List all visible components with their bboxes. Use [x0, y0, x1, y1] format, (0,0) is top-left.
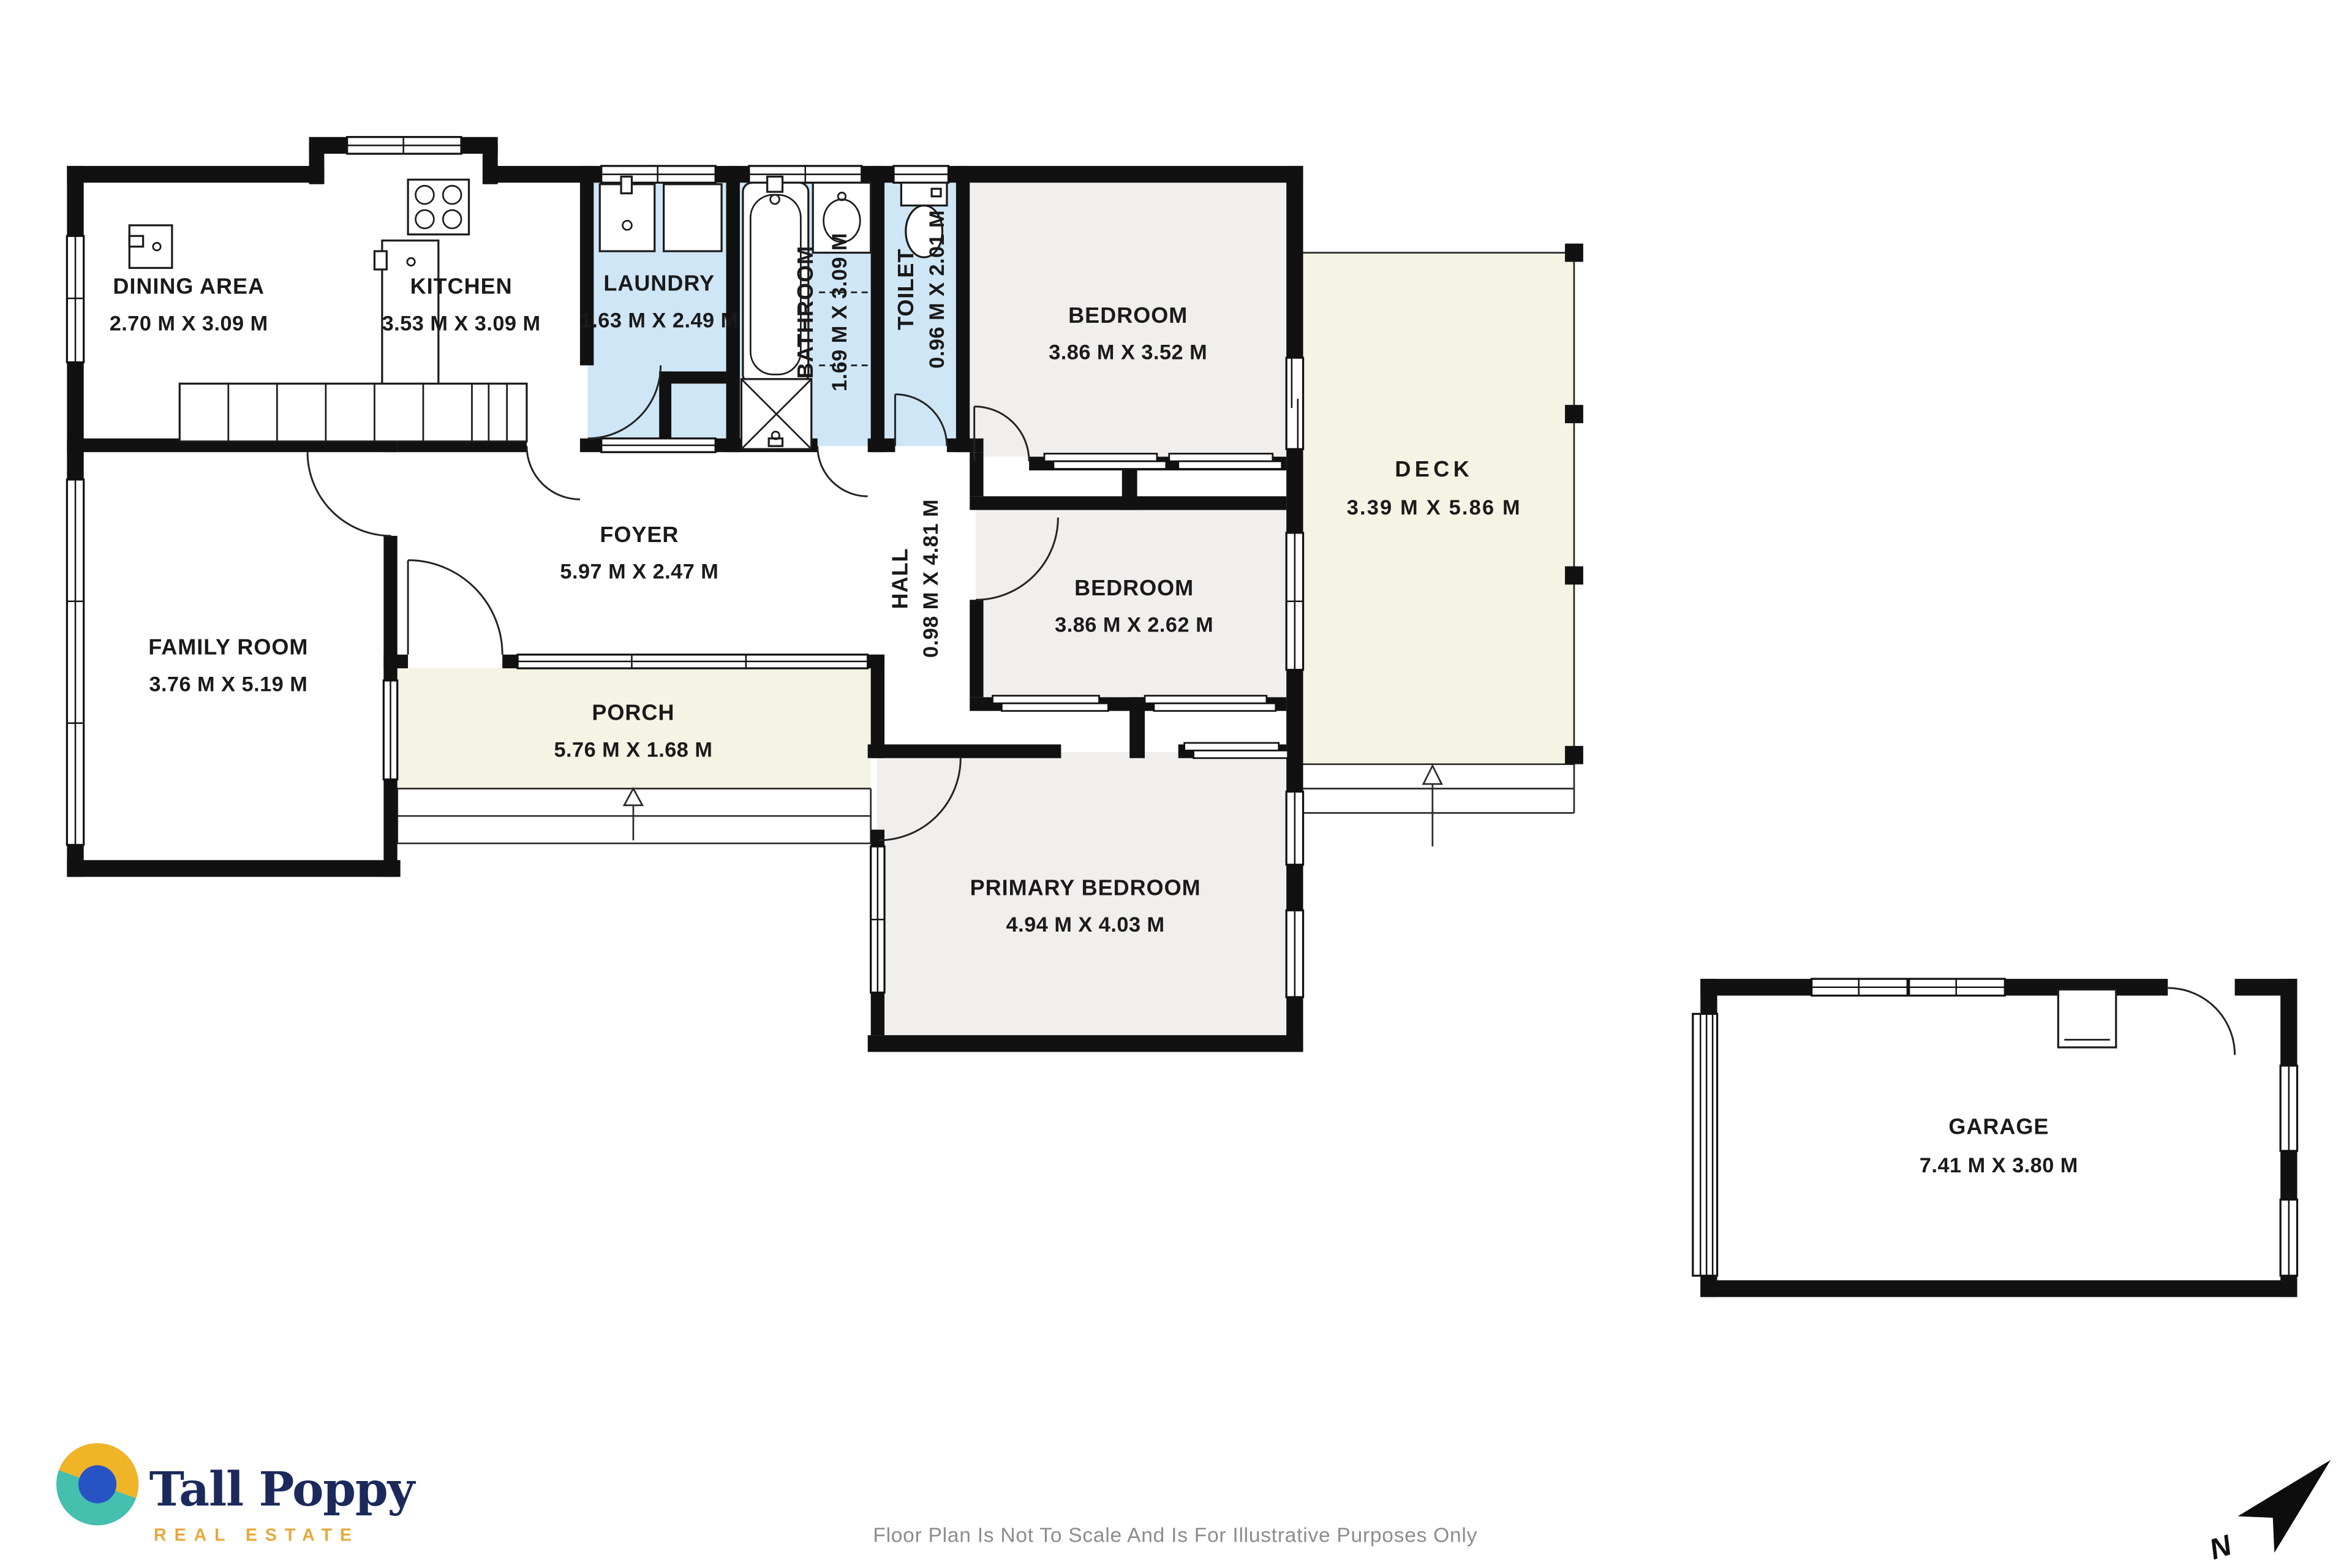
- brand-name: Tall Poppy: [149, 1462, 417, 1517]
- deck-post: [1565, 746, 1583, 764]
- stove: [408, 179, 469, 234]
- window-family-left: [67, 480, 83, 845]
- porch-structure: [398, 788, 871, 843]
- deck-post: [1565, 405, 1583, 423]
- label-bedroom2-dims: 3.86 M X 2.62 M: [1055, 613, 1213, 636]
- label-porch-dims: 5.76 M X 1.68 M: [554, 738, 712, 761]
- label-laundry-dims: 1.63 M X 2.49 M: [580, 309, 739, 332]
- deck-post: [1565, 244, 1583, 262]
- window-primary-right-1: [1286, 791, 1303, 864]
- north-arrow-n: N: [2206, 1529, 2236, 1566]
- slider-bedroom1-deck: [1286, 358, 1303, 449]
- label-dining-name: DINING AREA: [113, 274, 265, 299]
- window-garage-right-2: [2280, 1200, 2297, 1276]
- logo-center-dot: [78, 1465, 116, 1503]
- kitchen-cabinet-row: [179, 383, 527, 441]
- bedroom2-floor: [976, 502, 1286, 705]
- label-foyer-dims: 5.97 M X 2.47 M: [560, 560, 718, 583]
- window-laundry-top: [601, 166, 715, 183]
- window-family-porch: [383, 680, 397, 780]
- shower: [741, 379, 811, 449]
- label-hall-name: HALL: [887, 548, 912, 609]
- deck-post: [1565, 567, 1583, 585]
- label-foyer-name: FOYER: [600, 522, 679, 547]
- label-deck-name: DECK: [1395, 456, 1473, 481]
- label-garage-dims: 7.41 M X 3.80 M: [1920, 1154, 2078, 1177]
- window-primary-left: [871, 846, 884, 993]
- brand-logo: Tall Poppy REAL ESTATE: [56, 1443, 417, 1545]
- label-bathroom-name: BATHROOM: [793, 246, 818, 379]
- window-primary-right-2: [1286, 910, 1303, 997]
- window-garage-top-2: [1909, 979, 2005, 995]
- label-toilet-name: TOILET: [893, 249, 918, 330]
- dining-side-cabinet: [129, 225, 172, 268]
- label-porch-name: PORCH: [592, 700, 674, 725]
- label-bedroom1-dims: 3.86 M X 3.52 M: [1049, 341, 1207, 364]
- garage-fixtures: [2058, 990, 2116, 1047]
- window-garage-top-1: [1812, 979, 1908, 995]
- laundry-bench: [664, 184, 722, 251]
- label-hall-dims: 0.98 M X 4.81 M: [919, 499, 943, 658]
- window-porch-front: [518, 655, 868, 668]
- label-kitchen-dims: 3.53 M X 3.09 M: [382, 312, 541, 335]
- label-garage-name: GARAGE: [1948, 1114, 2049, 1139]
- label-dining-dims: 2.70 M X 3.09 M: [110, 312, 268, 335]
- window-garage-right-1: [2280, 1066, 2297, 1151]
- floorplan-drawing: DINING AREA 2.70 M X 3.09 M KITCHEN 3.53…: [0, 0, 2352, 1568]
- window-bedroom2-right: [1286, 533, 1303, 670]
- label-bedroom1-name: BEDROOM: [1068, 303, 1188, 328]
- label-deck-dims: 3.39 M X 5.86 M: [1347, 496, 1521, 519]
- porch-steps-arrow-head: [624, 788, 643, 805]
- window-laundry-bottom: [601, 439, 715, 452]
- north-arrow: N: [2206, 1460, 2331, 1567]
- island-handle: [374, 251, 386, 269]
- label-family-name: FAMILY ROOM: [148, 635, 308, 660]
- foyer-floor: [391, 446, 884, 660]
- label-bathroom-dims: 1.69 M X 3.09 M: [828, 233, 851, 391]
- label-family-dims: 3.76 M X 5.19 M: [149, 673, 307, 696]
- footer-disclaimer: Floor Plan Is Not To Scale And Is For Il…: [873, 1525, 1477, 1547]
- label-primary-dims: 4.94 M X 4.03 M: [1006, 913, 1165, 937]
- label-primary-name: PRIMARY BEDROOM: [970, 875, 1201, 900]
- label-toilet-dims: 0.96 M X 2.01 M: [925, 210, 949, 369]
- window-bathroom-top: [749, 166, 862, 183]
- brand-tagline: REAL ESTATE: [154, 1525, 360, 1545]
- north-arrow-icon: [2238, 1460, 2331, 1553]
- laundry-tap: [621, 176, 631, 193]
- window-kitchen-bump: [347, 137, 461, 154]
- label-laundry-name: LAUNDRY: [603, 271, 715, 296]
- floorplan-page: DINING AREA 2.70 M X 3.09 M KITCHEN 3.53…: [0, 0, 2352, 1568]
- label-kitchen-name: KITCHEN: [410, 274, 513, 299]
- porch-floor: [398, 668, 871, 788]
- deck-steps-arrow-head: [1423, 766, 1442, 784]
- window-toilet-top: [894, 166, 948, 183]
- water-heater: [2058, 990, 2116, 1047]
- label-bedroom2-name: BEDROOM: [1074, 575, 1194, 600]
- garage-door-left: [1693, 1014, 1717, 1275]
- bathtub-tap: [767, 176, 783, 192]
- window-dining-left: [67, 236, 83, 362]
